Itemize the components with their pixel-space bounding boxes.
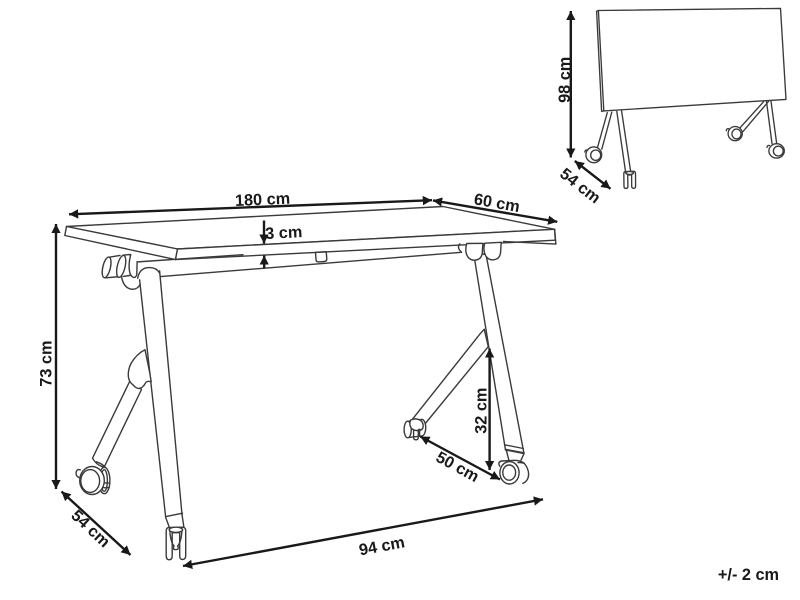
svg-text:98 cm: 98 cm: [556, 57, 574, 103]
svg-text:+/- 2 cm: +/- 2 cm: [718, 566, 779, 584]
svg-text:54 cm: 54 cm: [67, 507, 113, 552]
svg-text:54 cm: 54 cm: [556, 165, 603, 208]
svg-text:73 cm: 73 cm: [38, 341, 56, 387]
svg-text:3 cm: 3 cm: [265, 223, 303, 243]
svg-text:50 cm: 50 cm: [433, 448, 482, 486]
svg-text:60 cm: 60 cm: [473, 190, 522, 216]
svg-text:32 cm: 32 cm: [472, 388, 490, 434]
svg-text:94 cm: 94 cm: [358, 533, 407, 559]
svg-text:180 cm: 180 cm: [235, 190, 291, 210]
